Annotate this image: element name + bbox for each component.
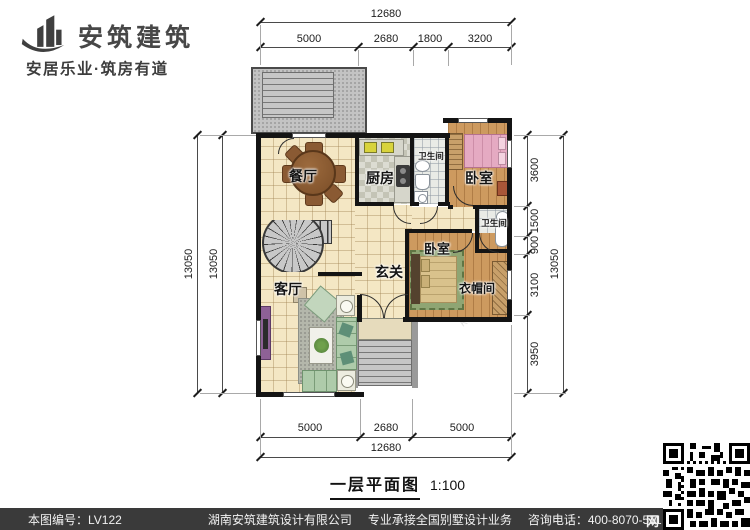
extension-line [514,254,530,255]
entrance-steps [352,318,418,388]
dim-label: 3100 [529,273,541,297]
coffee-table [309,327,333,364]
brand-tagline: 安居乐业·筑房有道 [26,57,169,79]
extension-line [514,393,566,394]
net-label: 网 [646,511,659,530]
service-line: 专业承接全国别墅设计业务 [368,511,512,528]
dim-label: 2680 [374,33,398,45]
tv-icon [263,319,268,349]
dim-label: 5000 [450,422,474,434]
dim-label: 1800 [418,33,442,45]
dim-line-left-outer [197,135,198,393]
sheet-number: 本图编号：LV122 [28,511,122,528]
washer-drum [418,194,427,203]
dim-label: 13050 [183,249,195,280]
kitchen-sink [364,142,377,153]
room-label-foyer: 玄关 [375,262,403,282]
dim-label: 3600 [529,158,541,182]
extension-line [511,325,512,455]
plant-icon [314,338,329,353]
kitchen-sink [381,142,394,153]
dim-label: 5000 [297,33,321,45]
phone-line: 咨询电话：400-8070-511 [528,511,662,528]
room-label-dining: 餐厅 [289,166,317,186]
wall [475,207,479,253]
dim-label: 3950 [529,342,541,366]
bed-headboard [411,254,420,304]
dim-line-bottom-total [260,457,511,458]
side-table [337,370,356,391]
extension-line [514,236,530,237]
room-label-cloakroom: 衣帽间 [459,280,495,297]
extension-line [514,206,530,207]
extension-line [448,50,449,66]
room-label-bedroom-1: 卧室 [465,168,493,188]
lamp-icon [341,375,354,388]
lamp-icon [340,300,353,313]
wardrobe-bedroom-1 [448,133,463,170]
extension-line [511,25,512,65]
pillow [498,137,506,150]
dim-label: 12680 [371,442,402,454]
toilet-icon [415,174,430,190]
throw-pillow [338,322,353,337]
dim-label: 900 [529,236,541,254]
wall [410,138,414,205]
dim-line-bottom-segments [260,437,511,438]
floor-plan-sheet: 安筑建筑 安居乐业·筑房有道 ku8z.com 安筑建筑 安筑建筑 ku8z.c… [0,0,750,530]
wall [318,272,362,276]
extension-line [358,50,359,66]
stair-fan-treads [262,220,324,272]
terrace-steps [262,72,334,118]
wall [355,202,394,206]
wall [256,133,450,138]
wall [410,202,419,206]
window [458,118,488,123]
pillow [421,259,430,272]
dim-line-top-total [260,22,511,23]
window [507,140,512,168]
extension-line [514,135,566,136]
wall [445,138,449,205]
entrance-stair-flight [358,340,412,386]
dim-label: 3200 [468,33,492,45]
room-label-bedroom-2: 卧室 [424,239,450,258]
stove-icon [396,165,410,187]
extension-line [360,399,361,435]
room-label-living: 客厅 [274,279,302,299]
footer-bar: 本图编号：LV122 湖南安筑建筑设计有限公司 专业承接全国别墅设计业务 咨询电… [0,508,750,530]
qr-code [663,443,750,530]
throw-pillow [340,351,355,366]
wall [355,138,359,205]
wall [403,317,512,322]
dim-label: 1500 [529,209,541,233]
extension-line [260,25,261,65]
wall [448,205,453,209]
extension-line [200,135,256,136]
drawing-scale: 1:100 [430,477,465,493]
room-label-bath-2: 卫生间 [481,217,507,229]
extension-line [200,393,256,394]
company-name: 湖南安筑建筑设计有限公司 [208,511,352,528]
stove-burner [400,178,406,184]
dim-label: 12680 [371,8,402,20]
side-table [336,295,355,316]
extension-line [514,315,530,316]
pillow [421,275,430,288]
stove-burner [400,168,406,174]
extension-line [412,399,413,435]
dim-line-left-inner [222,135,223,393]
extension-line [260,399,261,455]
sofa-long [336,317,357,370]
dim-label: 13050 [549,249,561,280]
brand-logo-icon [20,12,76,60]
sofa-short [302,370,337,392]
dim-label: 13050 [208,249,220,280]
dim-label: 5000 [298,422,322,434]
brand-name: 安筑建筑 [78,18,194,54]
drawing-title: 一层平面图 [330,471,420,500]
room-label-kitchen: 厨房 [366,168,394,188]
pillow [498,152,506,165]
extension-line [413,50,414,66]
dim-line-top-segments [260,47,511,48]
dim-label: 2680 [374,422,398,434]
drawing-title-block: 一层平面图 1:100 [330,471,465,500]
dim-line-right-segments [527,135,528,393]
terrace [251,67,367,134]
step-cheek-right [412,318,418,388]
window [256,320,261,356]
spiral-staircase [262,220,332,272]
window [292,133,326,138]
window [507,270,512,300]
room-label-bath-1: 卫生间 [418,150,444,162]
dim-line-right-total [563,135,564,393]
window [283,392,335,397]
wall [256,133,261,397]
